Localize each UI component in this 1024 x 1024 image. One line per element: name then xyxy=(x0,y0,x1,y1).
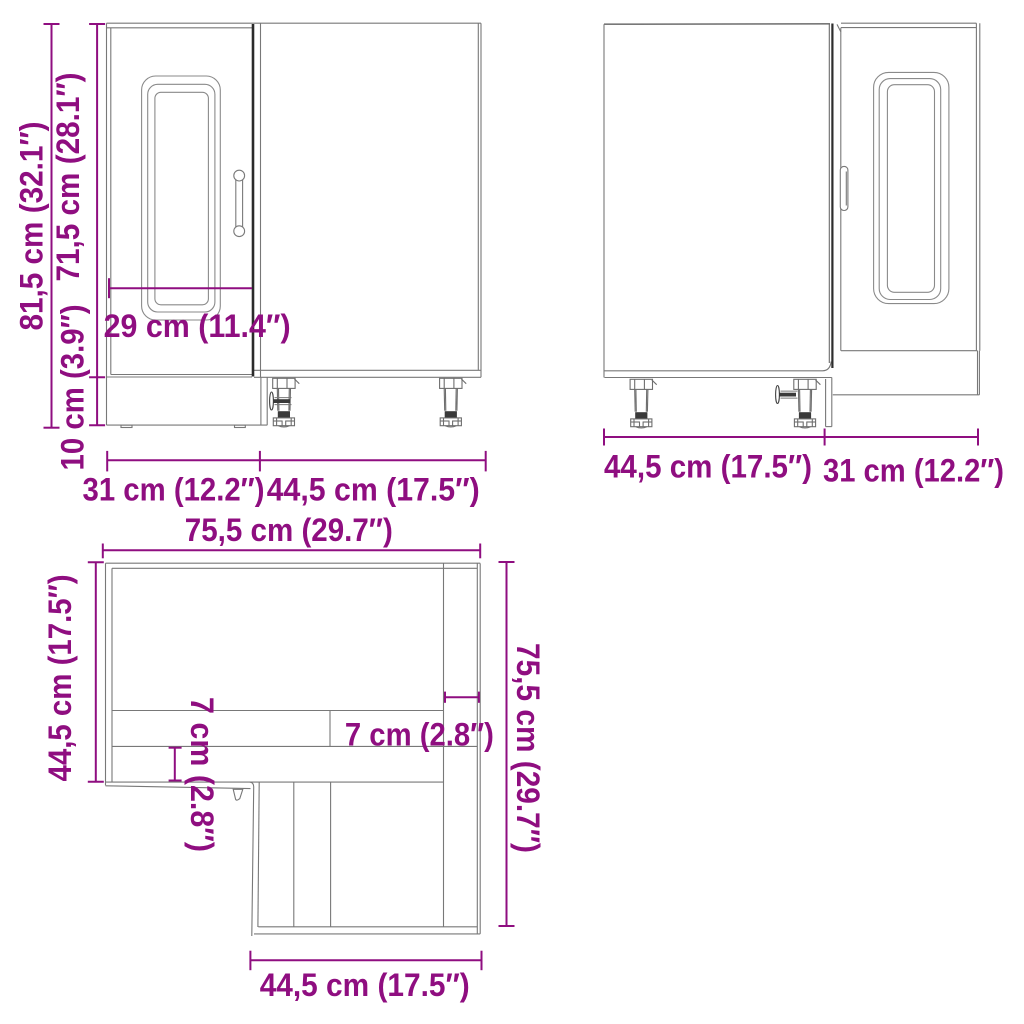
svg-text:31 cm (12.2″): 31 cm (12.2″) xyxy=(83,472,265,508)
svg-text:44,5 cm (17.5″): 44,5 cm (17.5″) xyxy=(42,575,78,782)
svg-text:71,5 cm (28.1″): 71,5 cm (28.1″) xyxy=(50,73,86,282)
svg-text:44,5 cm (17.5″): 44,5 cm (17.5″) xyxy=(267,472,480,508)
svg-text:10 cm (3.9″): 10 cm (3.9″) xyxy=(55,305,91,471)
svg-text:29 cm (11.4″): 29 cm (11.4″) xyxy=(104,308,291,344)
svg-text:44,5 cm (17.5″): 44,5 cm (17.5″) xyxy=(260,967,470,1003)
svg-text:7 cm (2.8″): 7 cm (2.8″) xyxy=(345,717,494,753)
svg-text:44,5 cm (17.5″): 44,5 cm (17.5″) xyxy=(604,449,812,485)
svg-text:75,5 cm (29.7″): 75,5 cm (29.7″) xyxy=(185,512,393,548)
svg-text:81,5 cm (32.1″): 81,5 cm (32.1″) xyxy=(13,122,49,331)
svg-text:7 cm (2.8″): 7 cm (2.8″) xyxy=(184,697,220,852)
svg-text:31 cm (12.2″): 31 cm (12.2″) xyxy=(823,453,1004,489)
svg-text:75,5 cm (29.7″): 75,5 cm (29.7″) xyxy=(510,643,546,853)
